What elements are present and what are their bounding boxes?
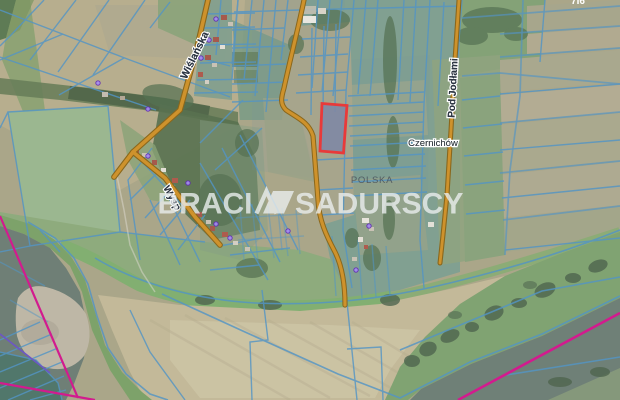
svg-text:BRACI: BRACI — [158, 188, 253, 221]
svg-text:SADURSCY: SADURSCY — [295, 188, 463, 221]
svg-text:POLSKA: POLSKA — [351, 175, 393, 186]
svg-text:Czernichów: Czernichów — [408, 138, 458, 149]
svg-text:7I6: 7I6 — [571, 0, 585, 7]
